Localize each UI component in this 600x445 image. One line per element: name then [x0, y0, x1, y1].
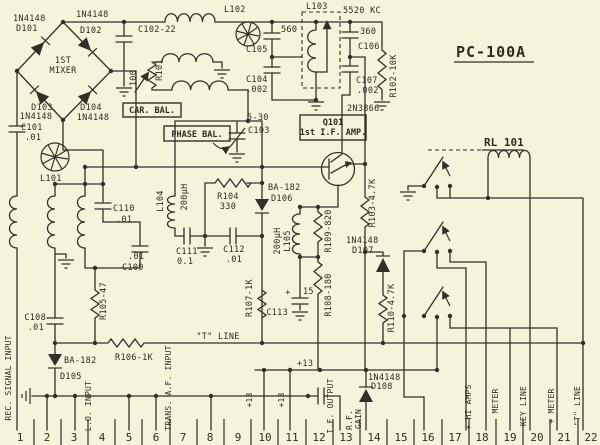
schematic-canvas: 1N4148 D101 1N4148 D102 1ST MIXER D103 1…: [0, 0, 600, 445]
label-if-output: I.F. OUTPUT: [326, 378, 335, 433]
pin-15: 15: [394, 431, 407, 444]
label-meter-plus: + METER: [547, 388, 556, 423]
label-rec-signal-input: REC. SIGNAL INPUT: [4, 335, 13, 420]
label-c106-value: 360: [360, 27, 376, 37]
pin-16: 16: [421, 431, 434, 444]
label-trans-af-input: TRANS. A.F. INPUT: [164, 345, 173, 430]
label-r110: R110-4.7K: [387, 283, 397, 332]
label-q101-part: 2N3866: [347, 104, 380, 114]
ground-icon: [197, 248, 213, 256]
label-c108-value: .01: [28, 323, 44, 333]
pin-22: 22: [584, 431, 597, 444]
label-key-line: KEY LINE: [519, 386, 528, 426]
diode-d105-icon: [48, 354, 62, 366]
label-meter-minus: - METER: [491, 388, 500, 423]
label-c110-value: .01: [116, 215, 132, 225]
label-r104-value: 330: [220, 202, 236, 212]
label-t-line-pin: "T" LINE: [573, 386, 582, 426]
label-d107: D107: [352, 246, 374, 256]
label-phase-bal: PHASE BAL.: [171, 130, 222, 140]
carrier-balance: C102-22 R101 100 CAR. BAL.: [116, 22, 181, 117]
label-c109-value: .01: [128, 252, 144, 262]
ground-icon: [214, 70, 230, 78]
pin-18: 18: [475, 431, 488, 444]
label-xtal-freq: 5520 KC: [343, 6, 381, 16]
label-plus13-pin10: +13: [245, 392, 254, 407]
relay-switch-1-icon: [424, 157, 443, 186]
label-r107: R107-1K: [245, 278, 255, 317]
label-d106: D106: [271, 194, 293, 204]
winding-1-icon: [10, 196, 18, 248]
label-c103-value: 5-30: [247, 113, 269, 123]
label-d108: D108: [371, 382, 393, 392]
label-c107: C107: [356, 76, 378, 86]
label-d105: D105: [60, 372, 82, 382]
label-c102: C102-22: [138, 25, 176, 35]
oscillator-tank: 560 C105 C104 .002 L103 5520 KC 360 C106…: [246, 2, 399, 110]
label-r105: R105-47: [99, 282, 109, 320]
label-c101: C101: [21, 123, 43, 133]
l104-coil-icon: [168, 196, 176, 228]
emitter-network: 200µH L105 R109-820 R108-180 + 15 C113: [266, 205, 334, 370]
label-r108: R108-180: [324, 273, 334, 316]
label-c103: C103: [248, 126, 270, 136]
ground-icon: [400, 192, 416, 200]
label-lo-input: L.O. INPUT: [84, 381, 93, 431]
pin-2: 2: [44, 431, 51, 444]
label-d105-part: BA-182: [64, 356, 97, 366]
label-l102: L102: [224, 5, 246, 15]
label-d106-part: BA-182: [268, 183, 301, 193]
label-l105-value: 200µH: [273, 227, 283, 254]
toroid-l102-icon: L102: [224, 5, 260, 46]
pin-21: 21: [557, 431, 570, 444]
label-l104: L104: [156, 190, 166, 212]
label-c107-value: .002: [357, 86, 379, 96]
label-c112: C112: [223, 245, 245, 255]
ground-icon: [22, 388, 30, 404]
ground-icon: [116, 88, 132, 96]
t-line: "T" LINE R106-1K: [53, 332, 585, 363]
winding-a-icon: [162, 54, 213, 62]
phase-balance: PHASE BAL. 5-30 C103: [164, 113, 270, 162]
label-r103: R103-4.7K: [368, 178, 378, 227]
ground-icon: [58, 260, 74, 268]
schematic-page: 1N4148 D101 1N4148 D102 1ST MIXER D103 1…: [0, 0, 600, 445]
label-c105: C105: [246, 45, 268, 55]
label-plus13: +13: [297, 359, 313, 369]
pin-5: 5: [126, 431, 133, 444]
winding-2-icon: [48, 184, 56, 248]
label-q101: Q101: [323, 118, 343, 128]
winding-b-icon: [172, 81, 228, 90]
relay-coil-icon: [488, 151, 530, 159]
l105-coil-icon: [293, 207, 301, 257]
label-d104-part: 1N4148: [77, 113, 110, 123]
label-l103: L103: [306, 2, 328, 12]
ground-icon: [308, 102, 324, 110]
label-c104-value: .002: [246, 85, 268, 95]
label-d102-part: 1N4148: [76, 10, 109, 20]
label-mixer-1: 1ST: [55, 56, 71, 66]
top-rail: [63, 14, 382, 24]
label-rf-gain-1: R.F.: [345, 410, 354, 430]
label-c105-value: 560: [281, 25, 297, 35]
label-r109: R109-820: [324, 209, 334, 252]
label-r104: R104: [217, 192, 239, 202]
relay-rl101: RL 101: [400, 136, 583, 430]
pin-3: 3: [71, 431, 78, 444]
label-q101-function: 1st I.F. AMP.: [300, 128, 367, 138]
pin-1: 1: [17, 431, 24, 444]
terminal-strip: 1 2 3 4 5 6 7 8 9 10 11 12 13 14 15 16 1…: [4, 335, 598, 445]
pin-8: 8: [207, 431, 214, 444]
label-r106: R106-1K: [115, 353, 154, 363]
label-c106: C106: [358, 42, 380, 52]
pin-13: 13: [339, 431, 352, 444]
label-d103-part: 1N4148: [20, 112, 53, 122]
label-t-line: "T" LINE: [196, 332, 239, 342]
label-c111: C111: [176, 247, 198, 257]
label-rl101: RL 101: [484, 136, 524, 149]
label-c113-plus: +: [285, 288, 290, 298]
ground-icon: [292, 312, 308, 320]
label-r101: R101: [155, 59, 165, 81]
pin-10: 10: [258, 431, 271, 444]
label-c113: C113: [266, 308, 288, 318]
label-c104: C104: [246, 75, 268, 85]
label-d102: D102: [80, 26, 102, 36]
label-d101: D101: [16, 24, 38, 34]
label-c109: C109: [122, 263, 144, 273]
label-d107-part: 1N4148: [346, 236, 379, 246]
pin-19: 19: [503, 431, 516, 444]
relay-switch-3-icon: [424, 287, 443, 316]
pin-12: 12: [312, 431, 325, 444]
primary-coil-icon: [165, 14, 215, 22]
label-plus13-pin11: +13: [277, 392, 286, 407]
label-c108: C108: [24, 313, 46, 323]
label-l104-value: 200µH: [180, 183, 190, 210]
relay-switch-2-icon: [424, 222, 443, 251]
pin-20: 20: [530, 431, 543, 444]
pin-4: 4: [99, 431, 106, 444]
pin-9: 9: [235, 431, 242, 444]
label-l101: L101: [40, 174, 62, 184]
pin-14: 14: [367, 431, 381, 444]
label-c101-value: .01: [25, 133, 41, 143]
mixer-bridge: 1N4148 D101 1N4148 D102 1ST MIXER D103 1…: [13, 10, 113, 123]
bias-filter: C110 .01 .01 C109 R105-47: [85, 184, 148, 343]
title-block: PC-100A: [454, 43, 534, 62]
label-c113-value: 15: [303, 287, 314, 297]
label-hi-amps: + HI AMPS: [464, 384, 473, 429]
diode-d106-icon: [255, 199, 269, 211]
label-d101-part: 1N4148: [13, 14, 46, 24]
ground-icon: [229, 154, 245, 162]
input-clamp: C108 .01 BA-182 D105: [24, 254, 96, 396]
winding-3-icon: [78, 184, 86, 248]
pin-6: 6: [153, 431, 160, 444]
label-c111-value: 0.1: [177, 257, 193, 267]
pin-11: 11: [285, 431, 298, 444]
label-c110: C110: [113, 204, 135, 214]
l103-coil-icon: [308, 30, 316, 72]
phase-bal-arrow-icon: [213, 143, 229, 149]
pin-17: 17: [448, 431, 461, 444]
pin-7: 7: [180, 431, 187, 444]
label-r102: R102-10K: [389, 54, 399, 98]
diode-d107-icon: [376, 258, 390, 272]
page-title: PC-100A: [456, 43, 526, 61]
label-d104: D104: [80, 103, 102, 113]
label-rf-gain-2: GAIN: [354, 409, 363, 429]
ground-bus: [22, 388, 340, 430]
label-r101-value: 100: [129, 70, 139, 86]
label-c112-value: .01: [226, 255, 242, 265]
label-l105: L105: [283, 230, 293, 252]
label-mixer-2: MIXER: [49, 66, 77, 76]
